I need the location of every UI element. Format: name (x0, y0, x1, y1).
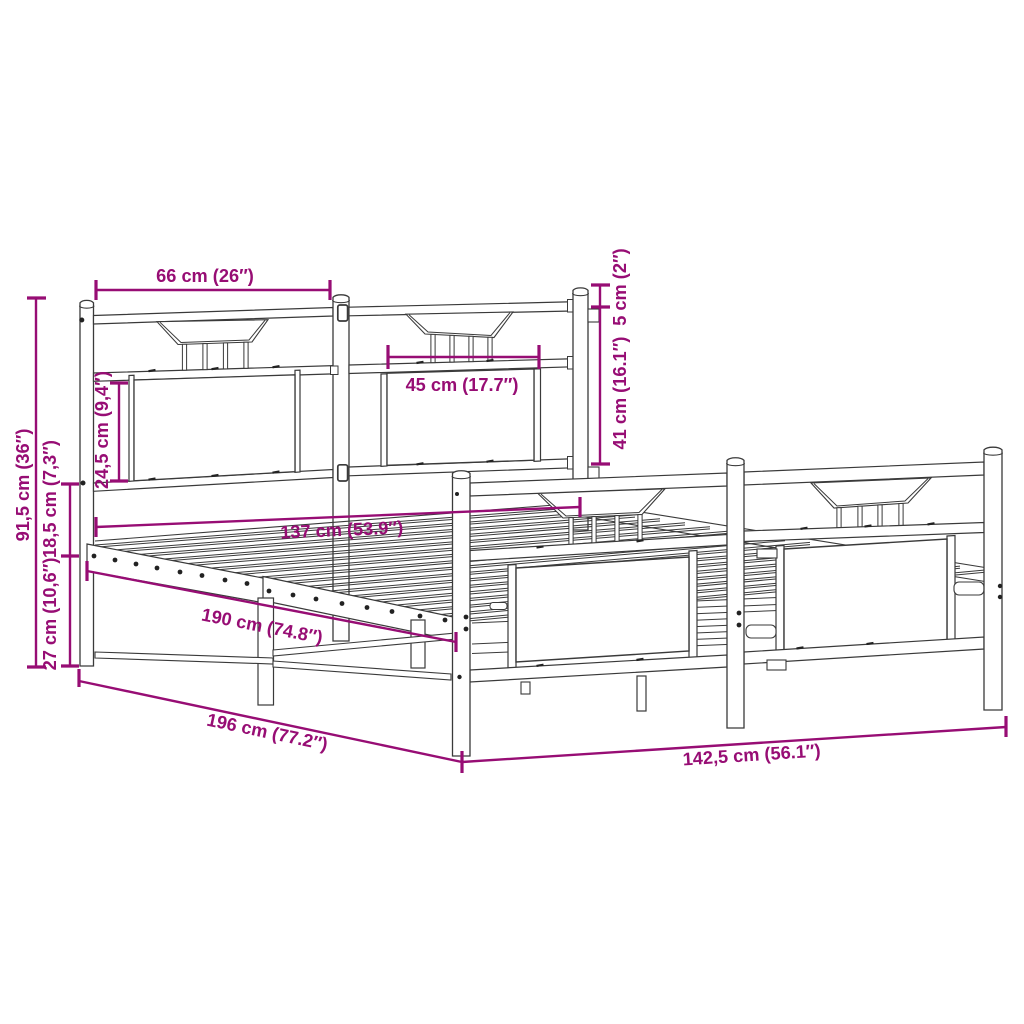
svg-text:27 cm (10,6″): 27 cm (10,6″) (40, 558, 60, 671)
svg-text:41 cm (16.1″): 41 cm (16.1″) (610, 337, 630, 450)
svg-text:18,5 cm (7,3″): 18,5 cm (7,3″) (40, 440, 60, 558)
svg-text:66 cm (26″): 66 cm (26″) (156, 266, 254, 286)
svg-text:24,5 cm (9,4″): 24,5 cm (9,4″) (92, 371, 112, 489)
svg-text:5 cm (2″): 5 cm (2″) (610, 248, 630, 325)
svg-text:91,5 cm (36″): 91,5 cm (36″) (13, 429, 33, 542)
svg-text:45 cm (17.7″): 45 cm (17.7″) (406, 375, 519, 395)
